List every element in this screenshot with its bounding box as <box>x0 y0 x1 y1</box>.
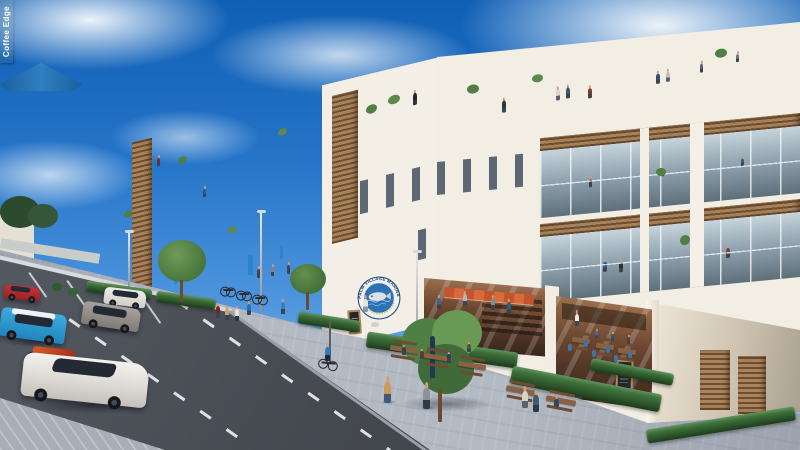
bike-frame <box>239 293 249 295</box>
person <box>224 305 230 320</box>
person <box>156 155 161 167</box>
person <box>735 51 740 62</box>
person <box>725 245 731 259</box>
balcony-plant <box>278 127 287 136</box>
person-with-dog <box>362 295 369 312</box>
dog <box>371 322 379 327</box>
bike-frame <box>255 297 265 299</box>
blue-chair <box>628 351 632 358</box>
street-tree <box>290 264 326 294</box>
person <box>532 390 540 412</box>
seated-person <box>401 345 407 355</box>
tree-trunk <box>180 280 183 302</box>
person <box>555 86 561 101</box>
street-lamp <box>128 232 130 292</box>
person <box>462 291 468 306</box>
seated-person <box>610 332 615 341</box>
person <box>412 89 418 105</box>
person <box>234 306 240 321</box>
narrow-window-row <box>360 163 434 214</box>
shadow <box>400 396 492 412</box>
person <box>618 259 624 273</box>
shop-sign <box>248 255 253 275</box>
bike-frame <box>322 361 336 364</box>
terrace-plant <box>532 74 543 83</box>
person <box>587 85 593 99</box>
seated-person <box>553 396 560 407</box>
indoor-plant <box>680 235 690 246</box>
person <box>506 299 512 314</box>
wood-accent-panel <box>332 90 358 244</box>
person <box>521 386 529 408</box>
person <box>588 176 593 187</box>
street-tree <box>158 240 206 282</box>
balcony-plant <box>178 155 187 164</box>
planter-plant <box>656 168 666 176</box>
person <box>270 264 275 276</box>
person <box>565 84 571 99</box>
seated-person <box>594 329 599 338</box>
facade-pier <box>640 128 649 293</box>
person <box>286 262 291 274</box>
seated-person <box>466 342 472 352</box>
facade-pier <box>690 122 704 287</box>
wood-slat-door <box>738 356 766 414</box>
tree-trunk <box>306 292 309 310</box>
terrace-plant <box>715 48 727 58</box>
bike-frame <box>223 289 233 291</box>
waitress <box>574 310 580 326</box>
terrace-plant <box>366 103 377 115</box>
balcony-plant <box>228 225 237 234</box>
seated-person <box>419 349 425 359</box>
tree-trunk <box>438 388 442 422</box>
person <box>655 70 661 84</box>
wood-slat-door <box>700 350 730 410</box>
seated-person <box>626 335 631 344</box>
person <box>501 97 507 113</box>
person <box>256 266 261 278</box>
terrace-plant <box>388 94 400 106</box>
hedge-ball <box>52 283 62 291</box>
person <box>602 259 608 273</box>
blue-chair <box>568 344 572 351</box>
shop-sign <box>280 245 283 259</box>
person <box>490 295 496 310</box>
car-windshield <box>51 358 118 378</box>
narrow-window-row <box>437 152 537 195</box>
person <box>246 301 252 315</box>
blue-chair <box>584 340 588 347</box>
blue-chair <box>606 346 610 353</box>
person <box>436 295 442 309</box>
person <box>280 299 286 314</box>
car-windows <box>92 305 127 318</box>
hedge-ball <box>68 288 78 296</box>
terrace-plant <box>467 84 479 94</box>
person <box>215 303 221 318</box>
parked-bicycle <box>219 286 236 298</box>
person <box>383 376 392 403</box>
seated-person <box>446 352 452 362</box>
architectural-rendering-scene: PALM VILLAGE MARINA Coffee Edge <box>0 0 800 450</box>
person <box>740 155 745 166</box>
person <box>422 382 431 409</box>
parked-bicycle <box>251 294 268 306</box>
person <box>202 186 207 198</box>
blue-chair <box>592 350 596 357</box>
person <box>699 60 704 72</box>
cloud <box>0 0 230 70</box>
car-windows <box>10 286 30 293</box>
car-windows <box>112 289 139 298</box>
person <box>665 68 671 82</box>
narrow-window-row <box>418 225 438 260</box>
blue-chair <box>614 355 618 362</box>
